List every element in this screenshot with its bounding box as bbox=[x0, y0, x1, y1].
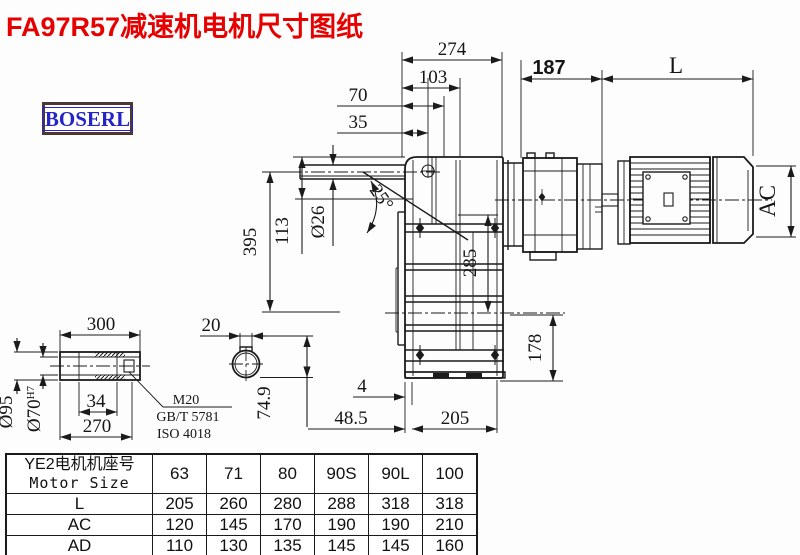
dim-AC: AC bbox=[755, 185, 780, 217]
cell: 318 bbox=[369, 494, 423, 515]
dim-48-5: 48.5 bbox=[334, 408, 367, 429]
cell: 130 bbox=[207, 536, 261, 555]
table-row: AD 110 130 135 145 145 160 bbox=[6, 536, 477, 555]
dim-95: Ø95 bbox=[0, 396, 17, 429]
size-col: 71 bbox=[207, 454, 261, 494]
cell: 280 bbox=[261, 494, 315, 515]
cell: 110 bbox=[153, 536, 207, 555]
standard-iso: ISO 4018 bbox=[157, 427, 211, 442]
cell: 260 bbox=[207, 494, 261, 515]
dim-270: 270 bbox=[83, 416, 112, 437]
top-dimensions: 274 103 70 35 187 L AC bbox=[293, 39, 796, 237]
dim-187: 187 bbox=[532, 57, 565, 79]
header-en: Motor Size bbox=[7, 474, 152, 492]
dim-205: 205 bbox=[441, 408, 470, 429]
cell: 210 bbox=[423, 515, 478, 536]
dim-274: 274 bbox=[438, 39, 467, 60]
dim-L: L bbox=[669, 53, 683, 78]
bottom-dimensions: 4 48.5 205 bbox=[308, 376, 497, 433]
motor-size-table: YE2电机机座号 Motor Size 63 71 80 90S 90L 100… bbox=[5, 453, 478, 555]
cell: 145 bbox=[369, 536, 423, 555]
drawing-sheet: FA97R57减速机电机尺寸图纸 BOSERL bbox=[0, 0, 800, 555]
cell: 288 bbox=[315, 494, 369, 515]
dim-20: 20 bbox=[202, 315, 221, 336]
cell: 170 bbox=[261, 515, 315, 536]
size-col: 63 bbox=[153, 454, 207, 494]
table-row: AC 120 145 170 190 190 210 bbox=[6, 515, 477, 536]
dim-70H7: Ø70H7 bbox=[24, 385, 45, 432]
dim-4: 4 bbox=[357, 376, 367, 397]
size-col: 100 bbox=[423, 454, 478, 494]
row-label: AC bbox=[6, 515, 153, 536]
table-header-label: YE2电机机座号 Motor Size bbox=[6, 454, 153, 494]
cell: 318 bbox=[423, 494, 478, 515]
cell: 190 bbox=[369, 515, 423, 536]
dim-35: 35 bbox=[349, 112, 368, 133]
cell: 120 bbox=[153, 515, 207, 536]
header-cn: YE2电机机座号 bbox=[7, 456, 152, 474]
size-col: 80 bbox=[261, 454, 315, 494]
dim-178: 178 bbox=[525, 334, 546, 363]
row-label: AD bbox=[6, 536, 153, 555]
bolt-icon bbox=[491, 218, 499, 238]
thread-spec: M20 bbox=[173, 393, 199, 408]
shaft-detail: 300 34 270 Ø95 Ø70H7 M20 GB/T 5781 ISO 4… bbox=[0, 314, 232, 442]
row-label: L bbox=[6, 494, 153, 515]
dim-395: 395 bbox=[240, 228, 261, 257]
cell: 160 bbox=[423, 536, 478, 555]
standard-gb: GB/T 5781 bbox=[156, 410, 219, 425]
dim-angle: 25° bbox=[365, 181, 397, 215]
cell: 205 bbox=[153, 494, 207, 515]
dim-300: 300 bbox=[87, 314, 116, 335]
bolt-icon bbox=[539, 189, 546, 205]
dim-34: 34 bbox=[87, 391, 107, 412]
table-header-row: YE2电机机座号 Motor Size 63 71 80 90S 90L 100 bbox=[6, 454, 477, 494]
bolt-icon bbox=[416, 218, 424, 238]
dim-shaft-diameter: Ø26 bbox=[308, 206, 329, 239]
dim-113: 113 bbox=[272, 217, 293, 245]
dim-285: 285 bbox=[460, 249, 481, 278]
table-row: L 205 260 280 288 318 318 bbox=[6, 494, 477, 515]
cell: 135 bbox=[261, 536, 315, 555]
dim-103: 103 bbox=[419, 67, 448, 88]
bolt-icon bbox=[416, 345, 424, 365]
size-col: 90L bbox=[369, 454, 423, 494]
cell: 190 bbox=[315, 515, 369, 536]
motor-assembly bbox=[495, 153, 772, 260]
bolt-icon bbox=[491, 345, 499, 365]
cell: 145 bbox=[207, 515, 261, 536]
dim-70: 70 bbox=[349, 85, 368, 106]
cell: 145 bbox=[315, 536, 369, 555]
dim-74-9: 74.9 bbox=[254, 386, 275, 419]
size-col: 90S bbox=[315, 454, 369, 494]
motor-plate bbox=[643, 172, 690, 224]
